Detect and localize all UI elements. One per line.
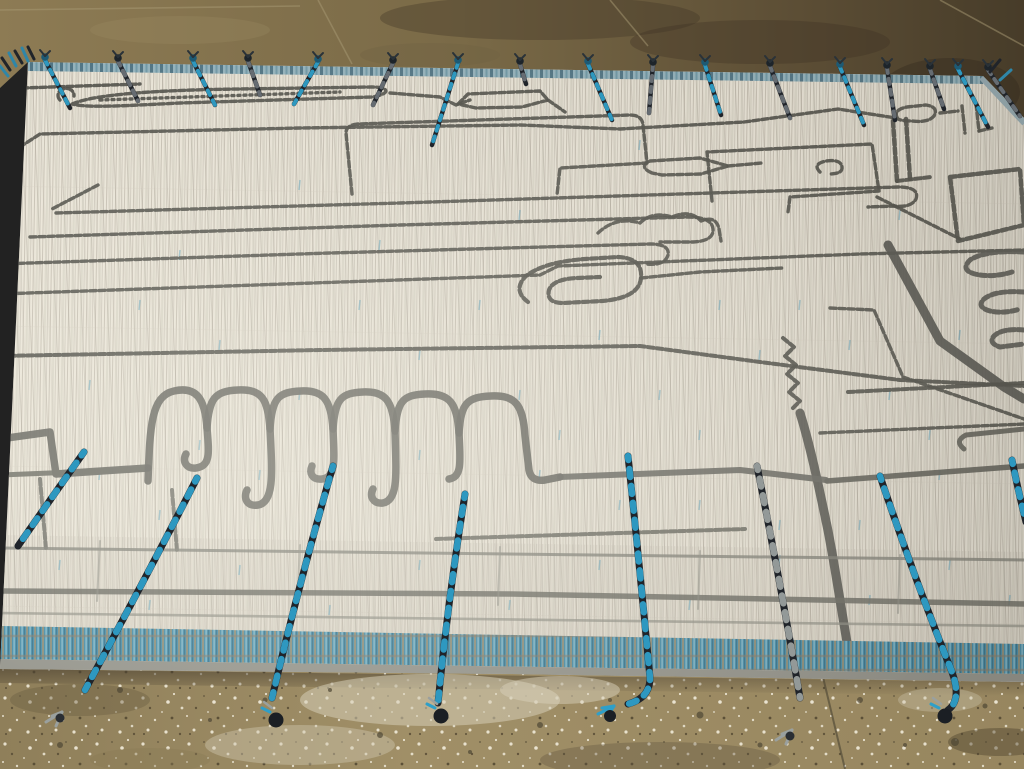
pebble (983, 704, 988, 709)
pebble (951, 738, 959, 746)
floor-stain (630, 20, 890, 64)
area-rug (0, 50, 1024, 690)
tassel-knot (56, 714, 65, 723)
pebble (208, 718, 212, 722)
pebble (57, 742, 63, 748)
floor-patch (500, 676, 620, 704)
rug-highlight (0, 50, 1024, 690)
pebble (537, 722, 543, 728)
pebble (328, 688, 332, 692)
floor-stain (90, 16, 270, 44)
pebble (608, 698, 612, 702)
tassel-knot (786, 732, 795, 741)
tassel-knot (938, 709, 953, 724)
tassel-knot (269, 713, 284, 728)
floor-bottom (0, 669, 1024, 769)
pebble (758, 743, 763, 748)
floor-patch (205, 725, 395, 765)
tassel-knot (434, 709, 449, 724)
rug-photograph (0, 0, 1024, 769)
pebble (468, 750, 472, 754)
floor-patch (10, 684, 150, 716)
tassel-knot (604, 710, 616, 722)
motif-line (13, 88, 20, 150)
pebble (697, 712, 704, 719)
floor-stain (360, 43, 500, 67)
pebble (857, 697, 863, 703)
pebble (903, 743, 907, 747)
scene-photo (0, 0, 1024, 769)
pebble (117, 687, 123, 693)
pebble (377, 732, 383, 738)
